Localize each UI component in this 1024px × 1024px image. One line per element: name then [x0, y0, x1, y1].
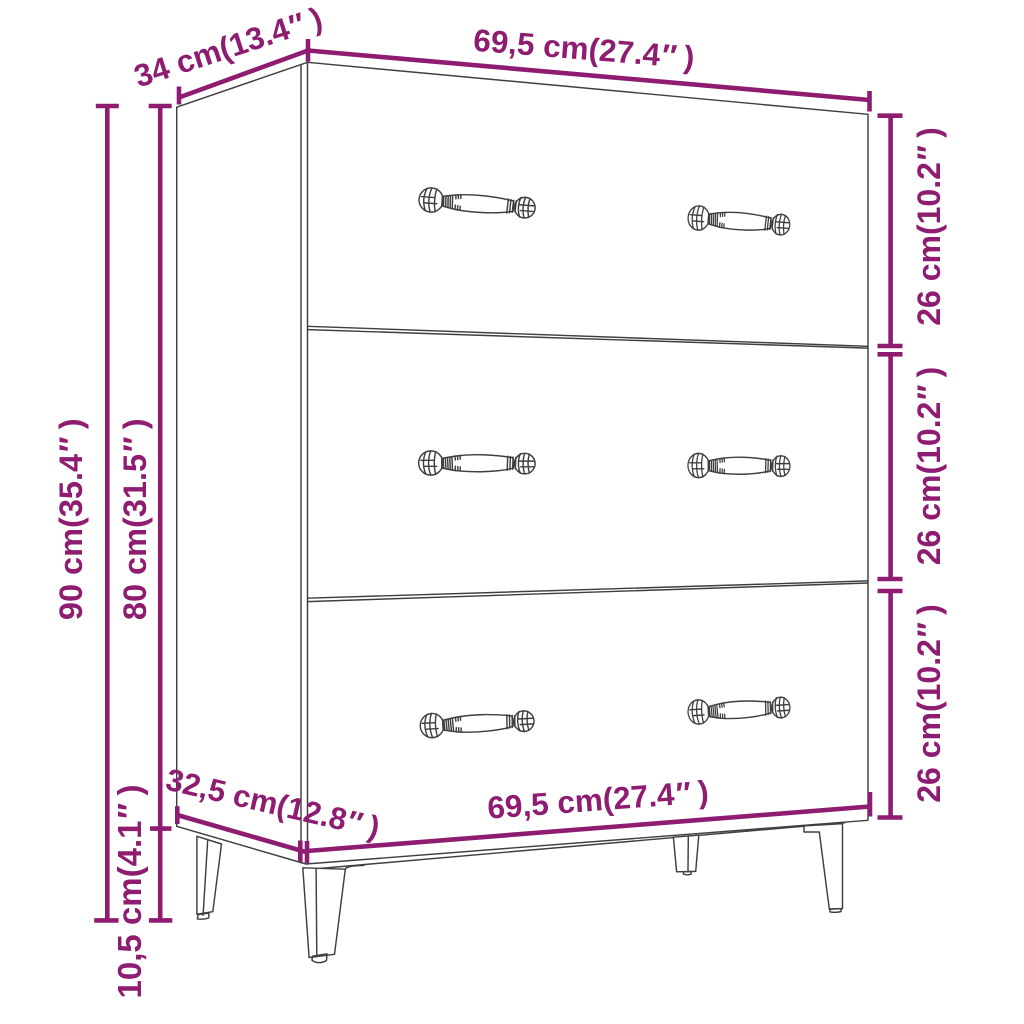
svg-text:26 cm(10.2″ ): 26 cm(10.2″ ): [911, 127, 947, 326]
svg-text:26 cm(10.2″ ): 26 cm(10.2″ ): [911, 604, 947, 803]
svg-text:26 cm(10.2″ ): 26 cm(10.2″ ): [911, 367, 947, 566]
svg-text:80 cm(31.5″ ): 80 cm(31.5″ ): [117, 418, 153, 620]
svg-text:90 cm(35.4″ ): 90 cm(35.4″ ): [53, 418, 89, 620]
svg-text:10,5 cm(4.1″ ): 10,5 cm(4.1″ ): [111, 785, 148, 999]
